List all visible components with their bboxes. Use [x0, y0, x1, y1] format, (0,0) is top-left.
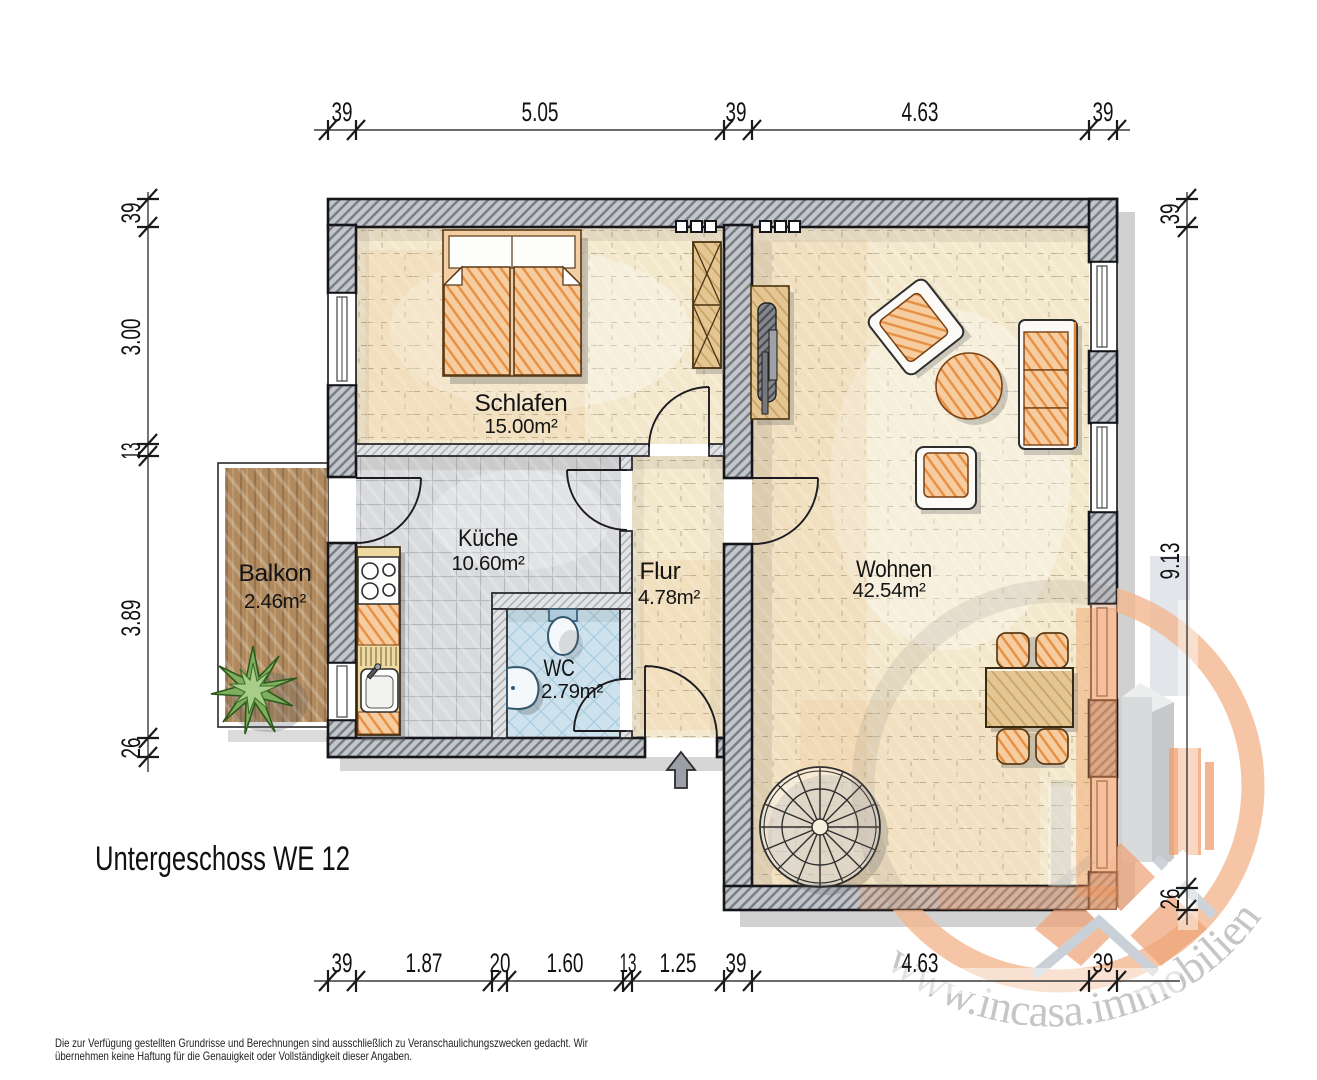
svg-text:39: 39 [116, 203, 146, 224]
svg-text:5.05: 5.05 [522, 97, 559, 127]
svg-text:1.25: 1.25 [660, 948, 697, 978]
svg-text:13: 13 [116, 443, 146, 460]
svg-text:26: 26 [116, 738, 146, 759]
svg-text:Flur: Flur [640, 558, 681, 585]
svg-text:39: 39 [726, 948, 747, 978]
svg-text:Die zur Verfügung gestellten G: Die zur Verfügung gestellten Grundrisse … [55, 1036, 588, 1050]
svg-text:1.87: 1.87 [406, 948, 443, 978]
svg-text:26: 26 [1155, 889, 1185, 910]
svg-text:39: 39 [1155, 204, 1185, 225]
svg-text:übernehmen keine Haftung für d: übernehmen keine Haftung für die Genauig… [55, 1049, 412, 1063]
svg-text:4.78m²: 4.78m² [638, 586, 700, 609]
svg-text:3.89: 3.89 [116, 600, 146, 637]
svg-text:39: 39 [332, 97, 353, 127]
svg-text:Untergeschoss WE 12: Untergeschoss WE 12 [95, 840, 350, 878]
svg-text:10.60m²: 10.60m² [451, 552, 525, 575]
svg-text:2.79m²: 2.79m² [541, 680, 603, 703]
svg-text:39: 39 [726, 97, 747, 127]
svg-text:39: 39 [1093, 97, 1114, 127]
svg-text:WC: WC [544, 655, 575, 682]
svg-text:13: 13 [620, 948, 637, 978]
svg-text:4.63: 4.63 [902, 948, 939, 978]
svg-text:20: 20 [490, 948, 511, 978]
svg-text:1.60: 1.60 [547, 948, 584, 978]
svg-text:4.63: 4.63 [902, 97, 939, 127]
svg-text:42.54m²: 42.54m² [852, 579, 926, 602]
svg-text:Schlafen: Schlafen [475, 390, 568, 417]
svg-text:9.13: 9.13 [1155, 543, 1185, 580]
svg-text:15.00m²: 15.00m² [484, 415, 558, 438]
svg-text:3.00: 3.00 [116, 319, 146, 356]
svg-text:39: 39 [332, 948, 353, 978]
svg-text:Küche: Küche [458, 525, 518, 552]
svg-text:39: 39 [1093, 948, 1114, 978]
svg-text:2.46m²: 2.46m² [244, 590, 306, 613]
svg-text:Balkon: Balkon [238, 560, 311, 587]
